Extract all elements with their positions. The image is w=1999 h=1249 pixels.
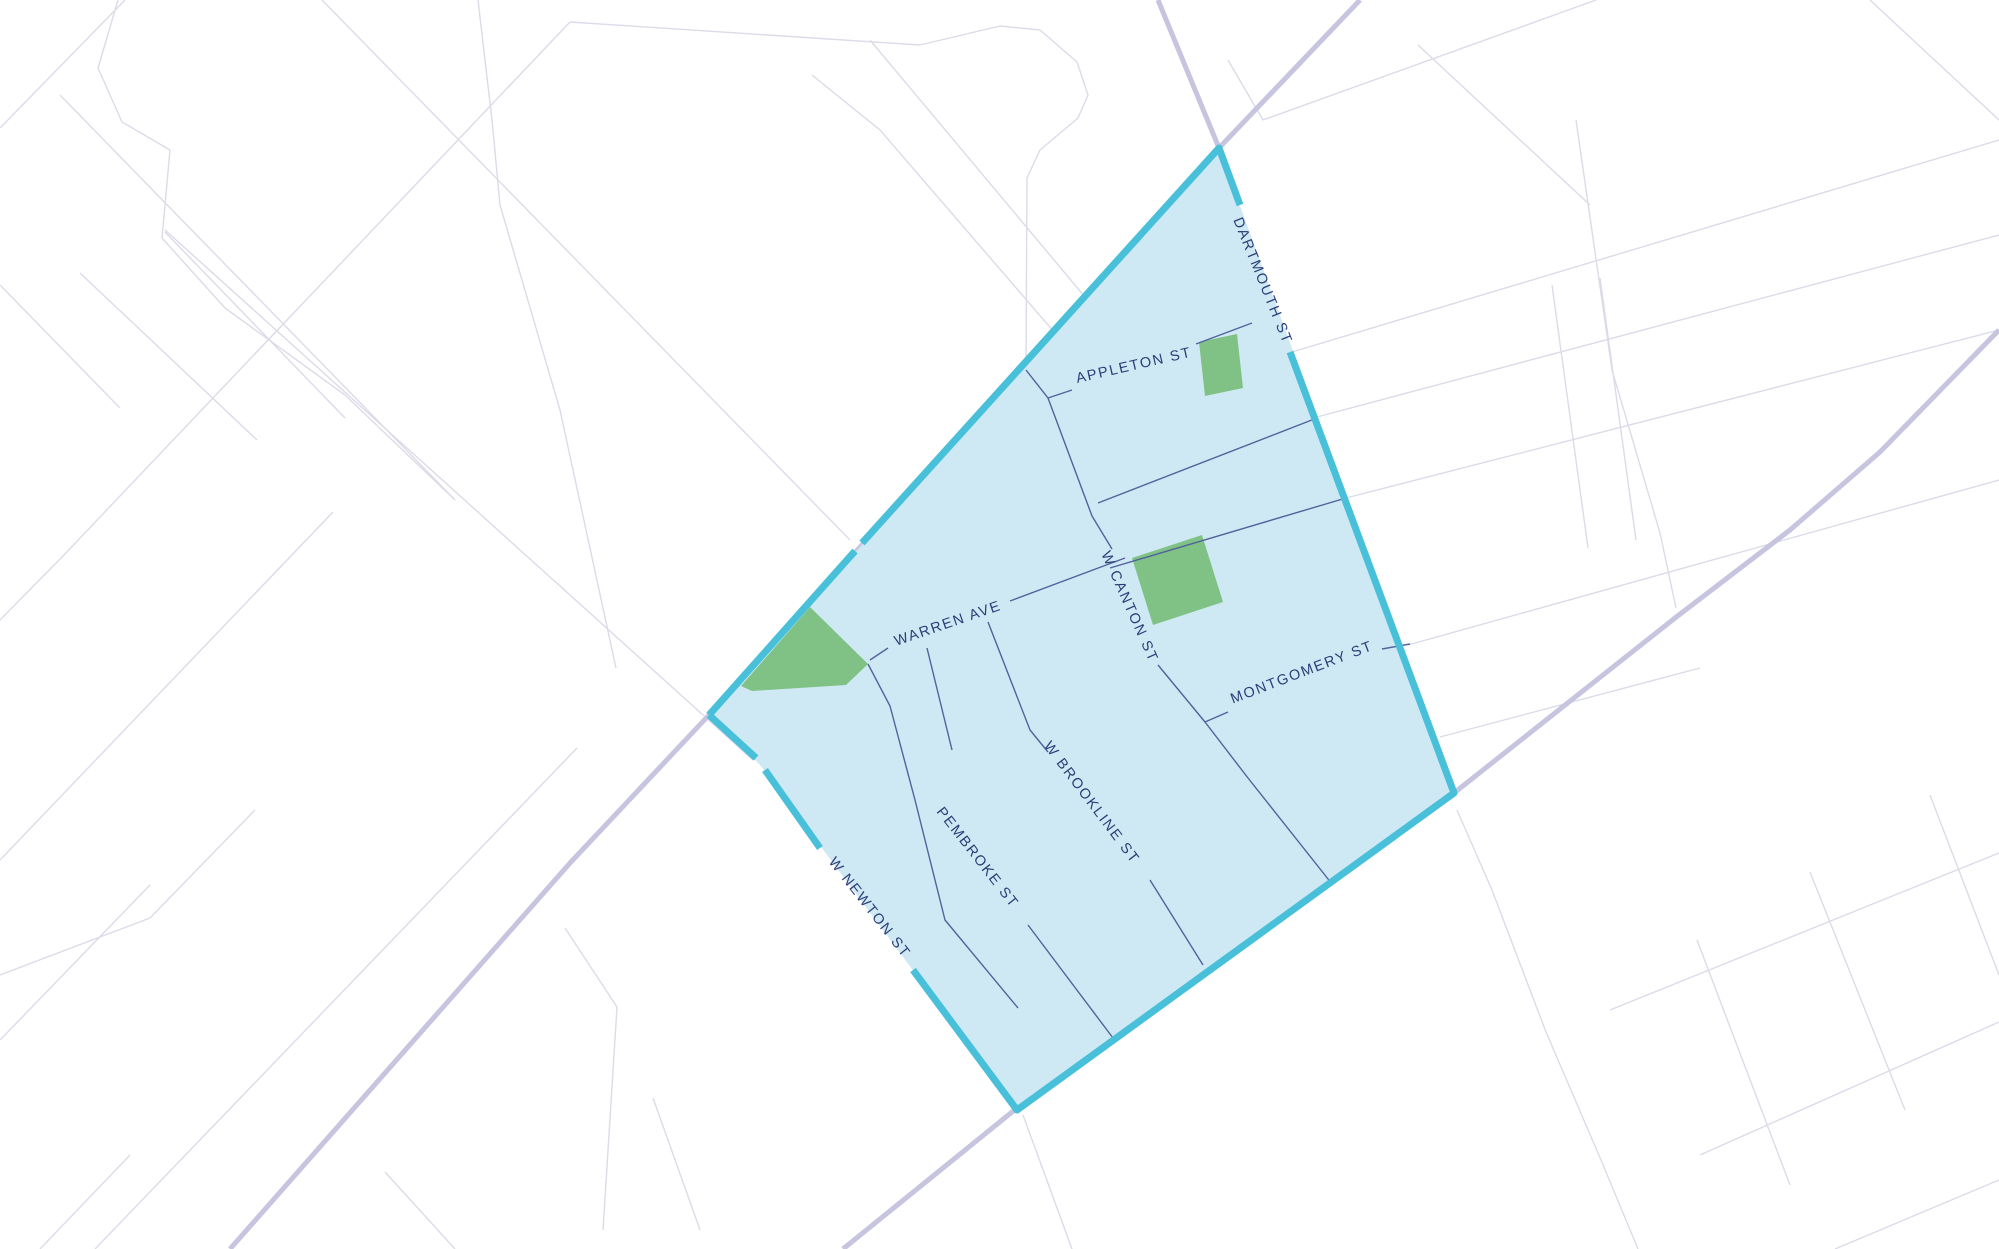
map-canvas[interactable]: DARTMOUTH STAPPLETON STW CANTON STWARREN… <box>0 0 1999 1249</box>
park-area <box>1199 334 1243 396</box>
map-svg[interactable]: DARTMOUTH STAPPLETON STW CANTON STWARREN… <box>0 0 1999 1249</box>
